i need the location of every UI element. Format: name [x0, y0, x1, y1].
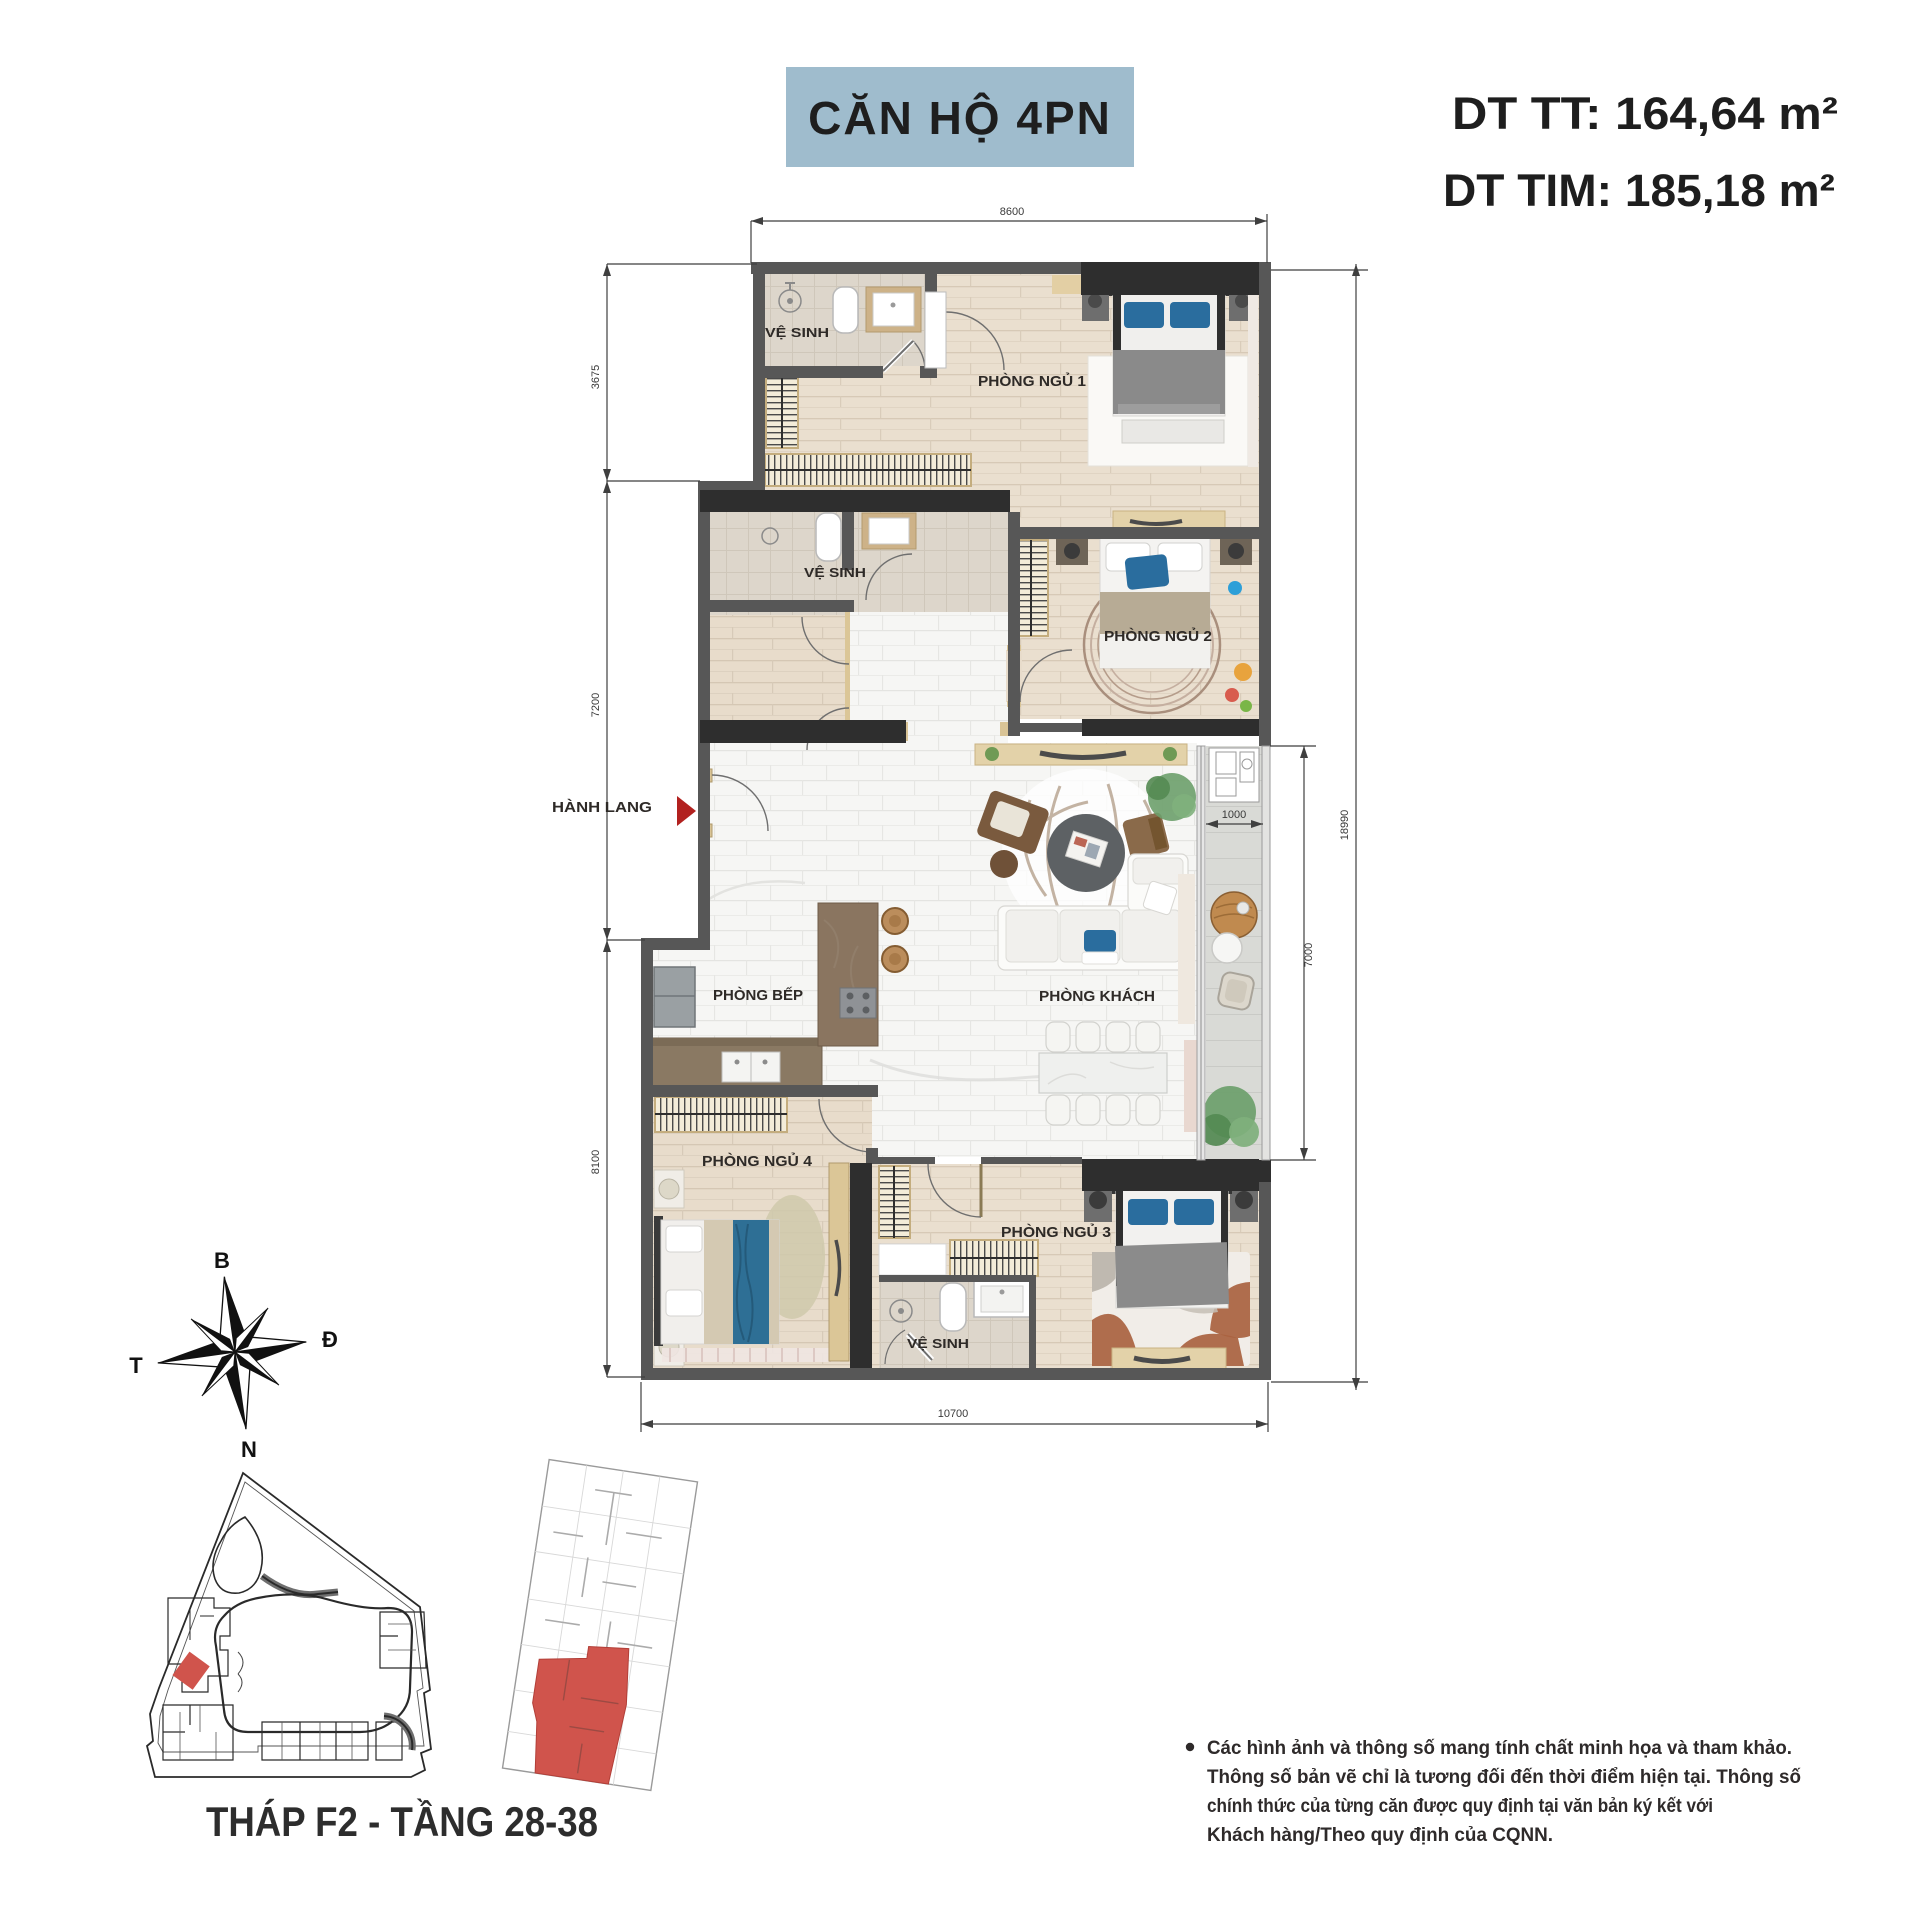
svg-text:B: B — [214, 1248, 230, 1273]
svg-text:HÀNH LANG: HÀNH LANG — [552, 799, 652, 816]
svg-text:DT TIM: 185,18 m²: DT TIM: 185,18 m² — [1443, 165, 1835, 216]
svg-text:N: N — [241, 1437, 257, 1462]
svg-text:PHÒNG BẾP: PHÒNG BẾP — [713, 986, 803, 1004]
svg-text:THÁP F2 - TẦNG 28-38: THÁP F2 - TẦNG 28-38 — [206, 1798, 598, 1845]
svg-text:Khách hàng/Theo quy định của C: Khách hàng/Theo quy định của CQNN. — [1207, 1824, 1553, 1846]
svg-text:10700: 10700 — [938, 1408, 969, 1420]
svg-text:VỆ SINH: VỆ SINH — [804, 565, 866, 580]
svg-text:VỆ SINH: VỆ SINH — [907, 1336, 969, 1351]
svg-text:DT TT: 164,64 m²: DT TT: 164,64 m² — [1452, 88, 1838, 139]
svg-text:Thông số bản vẽ chỉ là tương đ: Thông số bản vẽ chỉ là tương đối đến thờ… — [1207, 1766, 1801, 1788]
svg-text:PHÒNG KHÁCH: PHÒNG KHÁCH — [1039, 987, 1155, 1005]
svg-text:PHÒNG NGỦ 4: PHÒNG NGỦ 4 — [702, 1152, 813, 1170]
svg-text:1000: 1000 — [1222, 809, 1246, 821]
svg-text:T: T — [129, 1353, 143, 1378]
svg-text:18990: 18990 — [1339, 810, 1351, 841]
svg-text:Các hình ảnh và thông số mang: Các hình ảnh và thông số mang tính chất … — [1207, 1737, 1792, 1759]
svg-text:chính thức của từng căn được q: chính thức của từng căn được quy định tạ… — [1207, 1795, 1713, 1817]
svg-text:VỆ SINH: VỆ SINH — [765, 325, 829, 340]
svg-text:PHÒNG NGỦ 3: PHÒNG NGỦ 3 — [1001, 1223, 1111, 1241]
svg-text:7200: 7200 — [590, 693, 602, 717]
svg-text:8100: 8100 — [590, 1150, 602, 1174]
svg-text:7000: 7000 — [1303, 943, 1315, 967]
svg-text:8600: 8600 — [1000, 206, 1024, 218]
svg-text:3675: 3675 — [590, 365, 602, 389]
svg-text:CĂN HỘ 4PN: CĂN HỘ 4PN — [808, 92, 1112, 144]
svg-text:PHÒNG NGỦ 2: PHÒNG NGỦ 2 — [1104, 627, 1212, 645]
svg-text:PHÒNG NGỦ 1: PHÒNG NGỦ 1 — [978, 372, 1086, 390]
svg-text:Đ: Đ — [322, 1327, 338, 1352]
